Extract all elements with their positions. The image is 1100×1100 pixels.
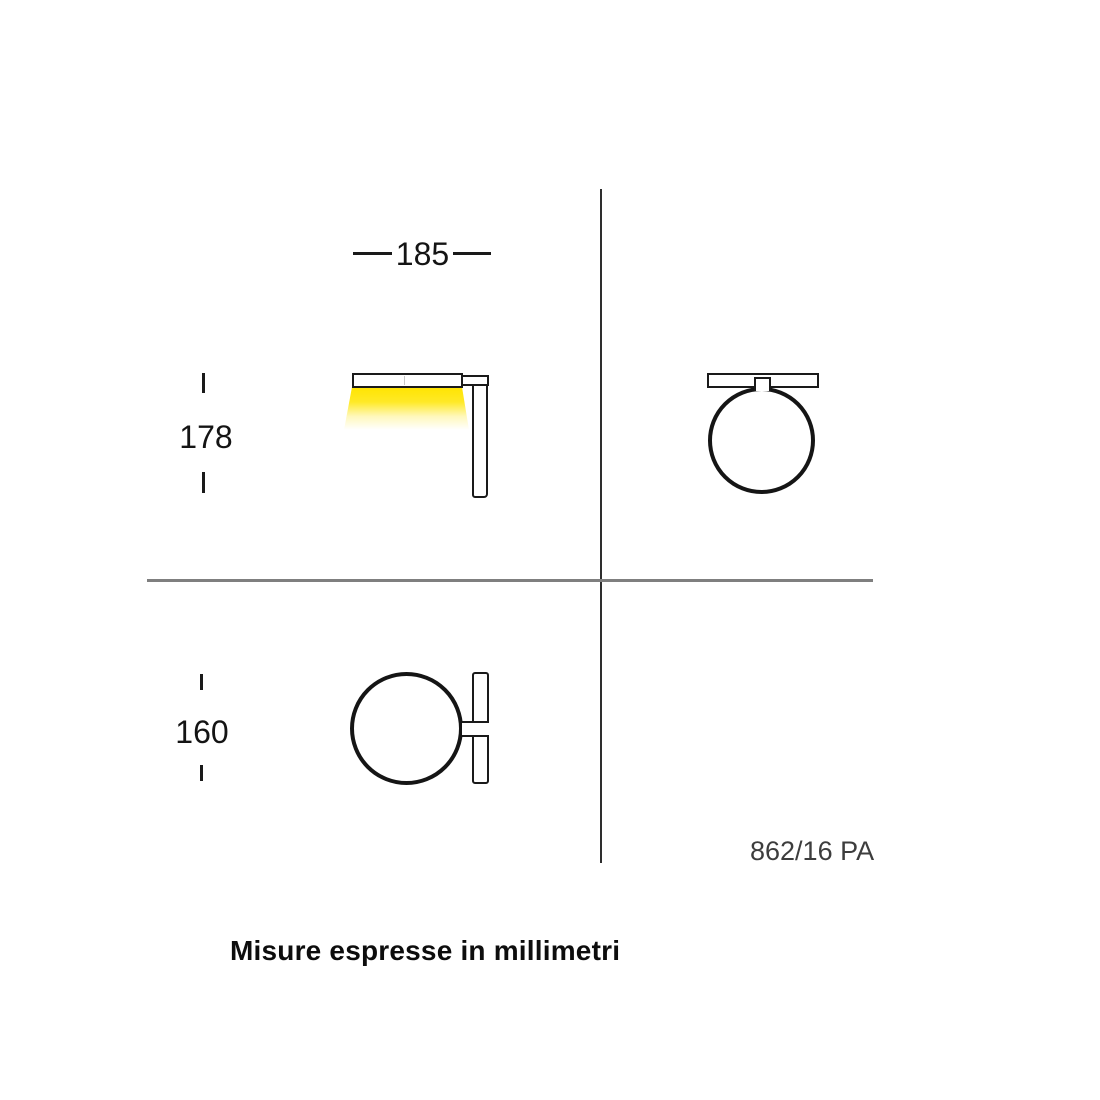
width-dimension-dash-right bbox=[453, 252, 491, 255]
light-beam-shape bbox=[344, 387, 469, 430]
width-dimension-label: 185 bbox=[390, 238, 455, 270]
height-dimension-label: 178 bbox=[176, 421, 236, 453]
lamp-connector-shape bbox=[461, 375, 489, 386]
lamp-head-seam bbox=[404, 376, 405, 385]
units-note-label: Misure espresse in millimetri bbox=[230, 934, 620, 968]
product-code-label: 862/16 PA bbox=[750, 836, 874, 866]
width-dimension-dash-left bbox=[353, 252, 392, 255]
height-dimension-tick-bottom bbox=[202, 472, 205, 493]
height-dimension-tick-top bbox=[202, 373, 205, 393]
crosshair-vertical-line bbox=[600, 189, 602, 863]
globe-plan-shape bbox=[350, 672, 463, 785]
stem-plan-shape bbox=[462, 721, 489, 737]
dimension-diagram-page: 185 178 160 862/16 PA Misure espresse in… bbox=[0, 0, 1100, 1100]
globe-front-shape bbox=[708, 387, 815, 494]
depth-dimension-tick-bottom bbox=[200, 765, 203, 781]
lamp-arm-shape bbox=[472, 382, 488, 498]
crosshair-horizontal-line bbox=[147, 579, 873, 582]
depth-dimension-tick-top bbox=[200, 674, 203, 690]
lamp-head-shape bbox=[352, 373, 463, 388]
stem-front-shape bbox=[754, 377, 771, 391]
depth-dimension-label: 160 bbox=[172, 716, 232, 748]
